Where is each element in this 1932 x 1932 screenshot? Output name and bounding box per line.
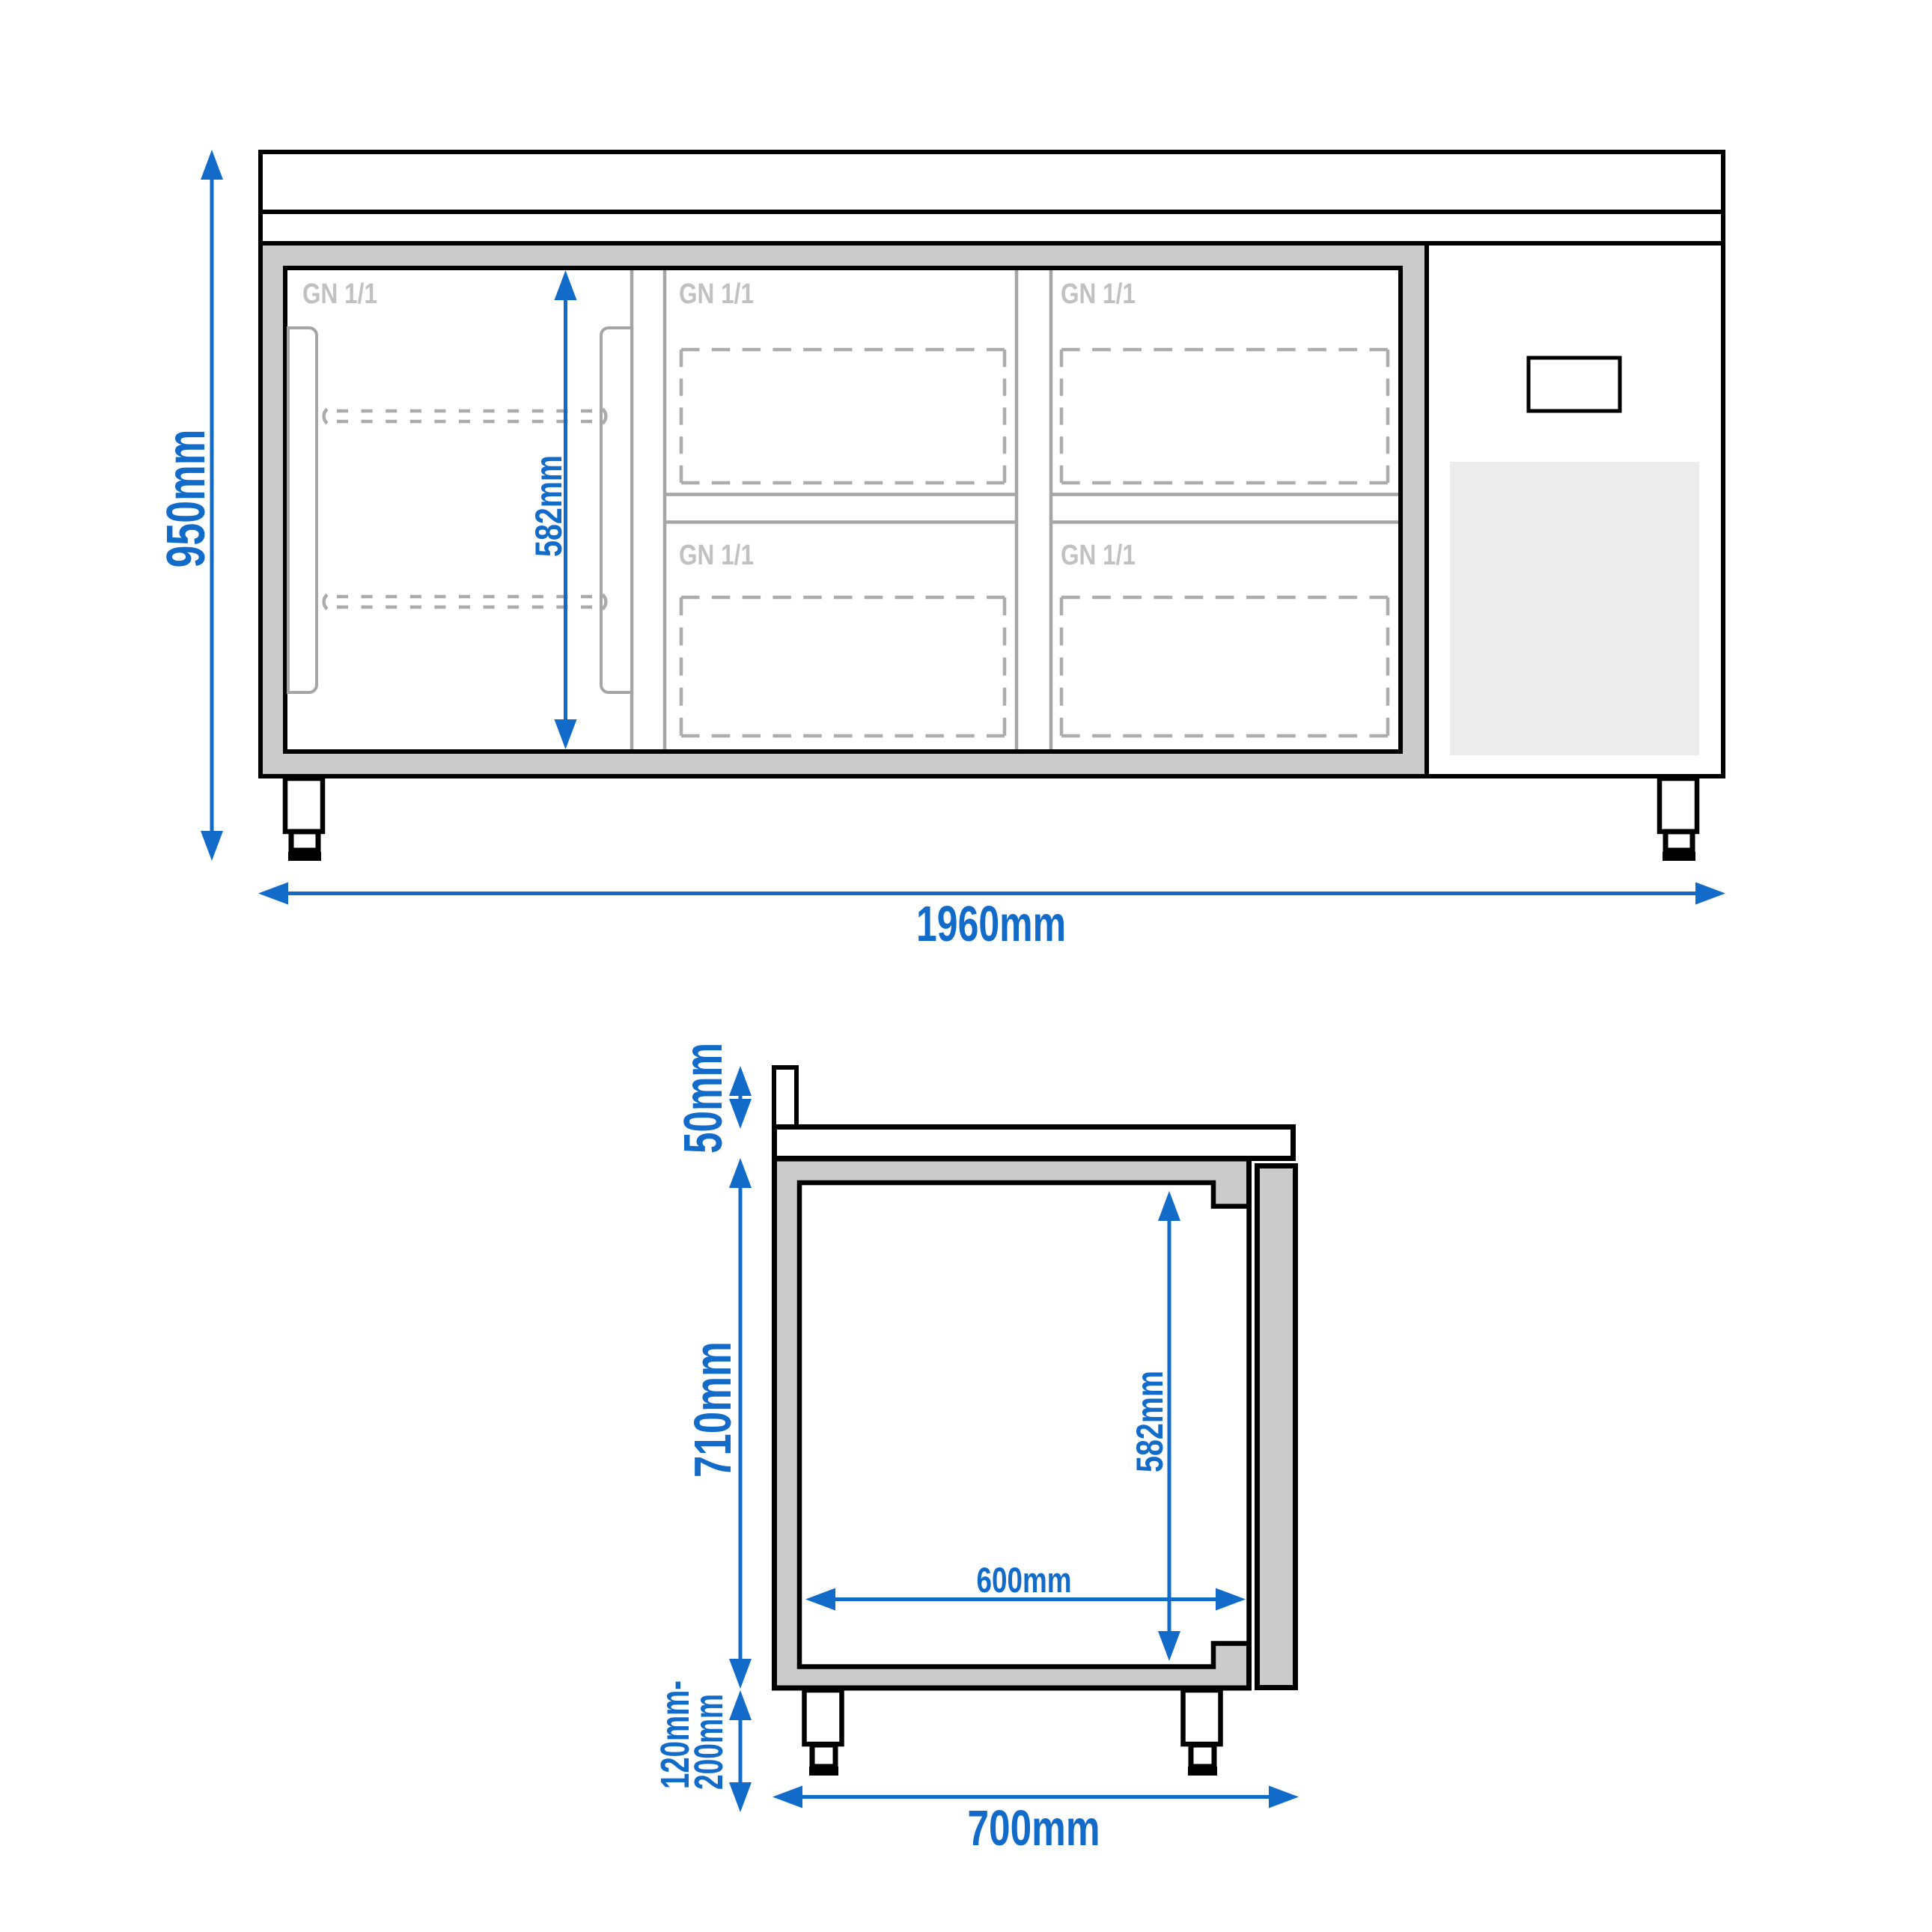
svg-text:1960mm: 1960mm — [916, 896, 1066, 952]
svg-text:600mm: 600mm — [977, 1560, 1072, 1600]
svg-text:50mm: 50mm — [674, 1043, 734, 1154]
svg-text:950mm: 950mm — [156, 430, 216, 568]
svg-text:582mm: 582mm — [1129, 1371, 1171, 1472]
svg-text:GN 1/1: GN 1/1 — [1061, 278, 1136, 310]
svg-text:200mm: 200mm — [686, 1694, 731, 1790]
svg-text:GN 1/1: GN 1/1 — [679, 278, 754, 310]
svg-text:710mm: 710mm — [683, 1341, 742, 1478]
svg-text:582mm: 582mm — [528, 455, 570, 557]
svg-text:GN 1/1: GN 1/1 — [679, 540, 754, 571]
svg-text:GN 1/1: GN 1/1 — [302, 278, 377, 310]
svg-text:GN 1/1: GN 1/1 — [1061, 540, 1136, 571]
svg-text:700mm: 700mm — [968, 1800, 1100, 1856]
